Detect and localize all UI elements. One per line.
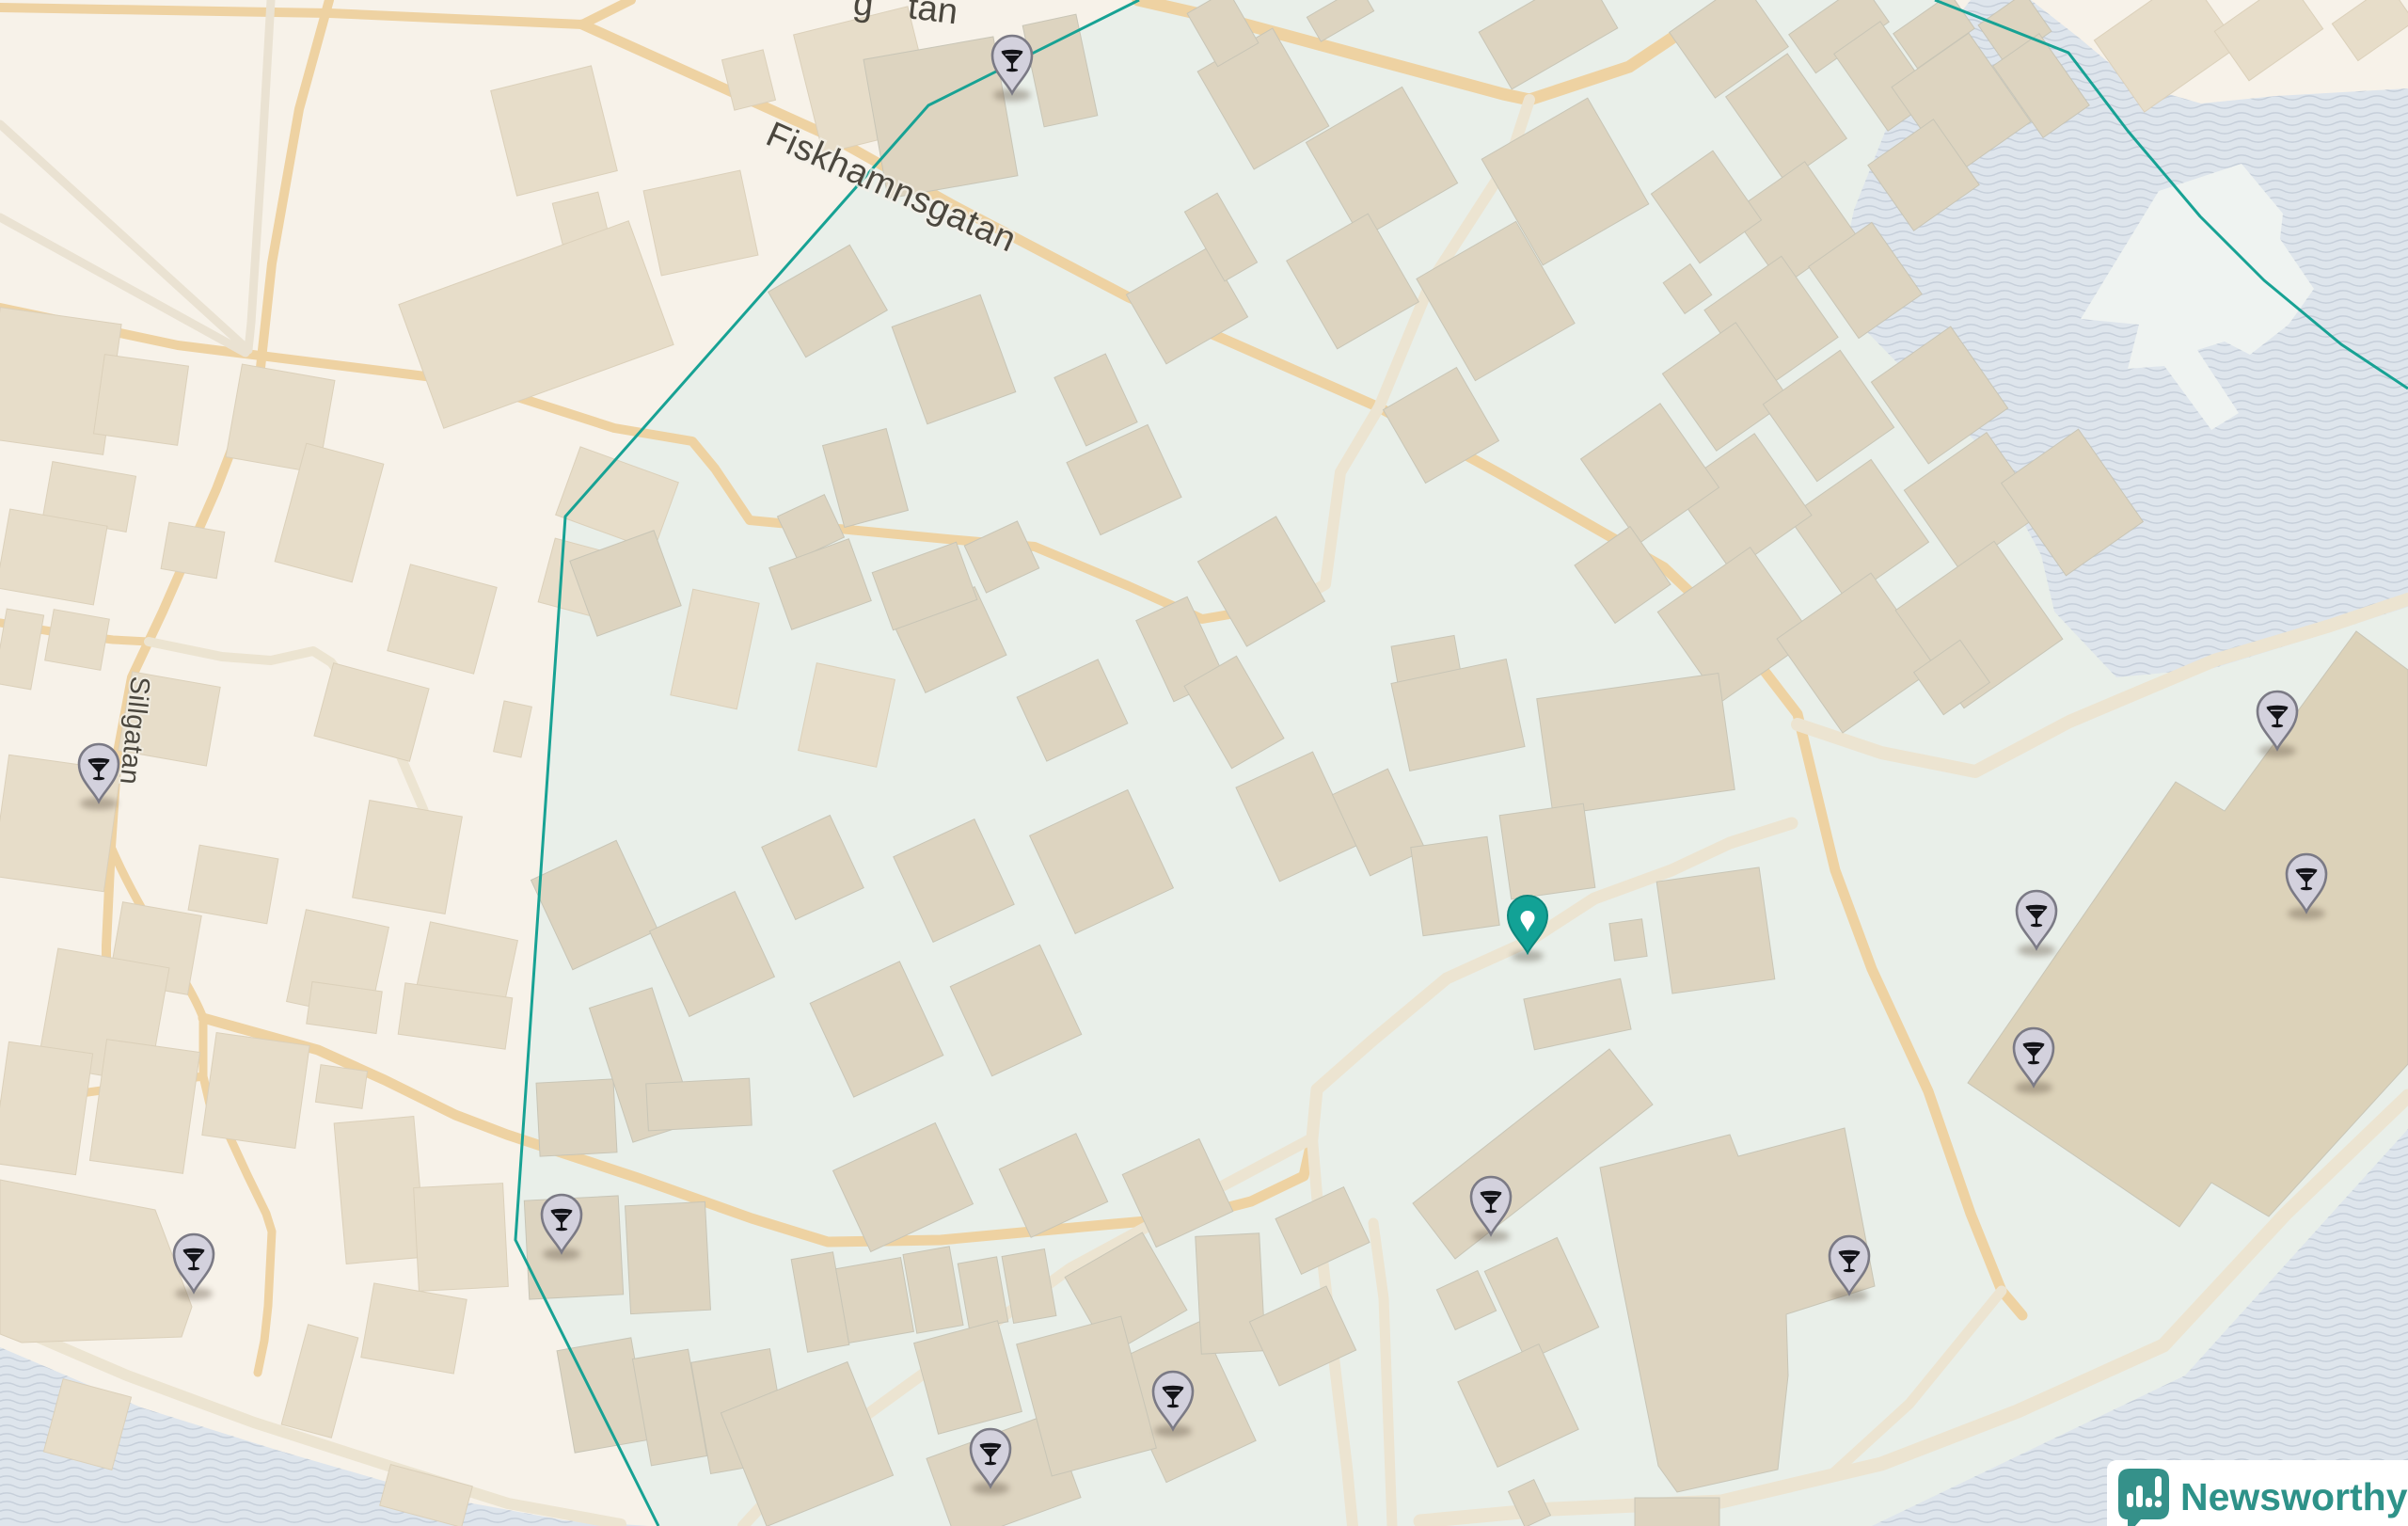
svg-text:Newsworthy: Newsworthy: [2180, 1475, 2408, 1518]
